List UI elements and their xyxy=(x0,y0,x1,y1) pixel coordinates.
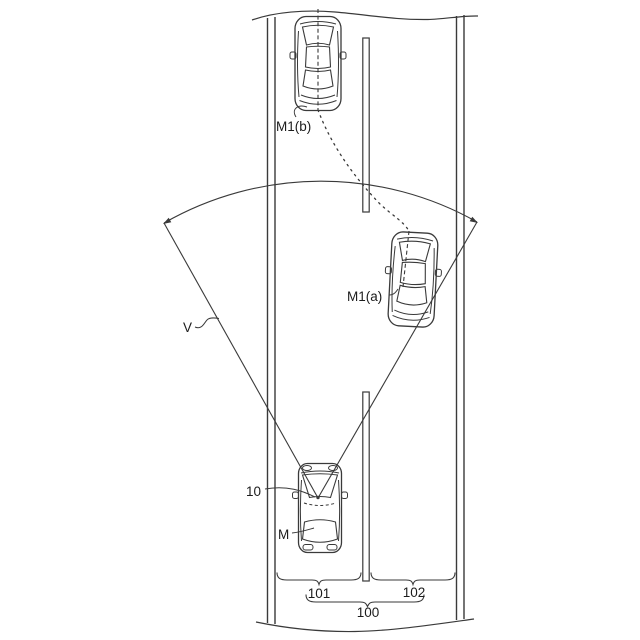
fov-arc xyxy=(164,181,477,223)
label-field-of-view: V xyxy=(183,320,192,335)
label-vehicle-m1a: M1(a) xyxy=(347,289,382,304)
vehicle-ego-headlight-left xyxy=(303,466,312,471)
vehicle-ego-taillight-right xyxy=(327,545,337,551)
predicted-trajectory xyxy=(318,9,409,287)
label-lane-right: 102 xyxy=(403,585,426,600)
sensor-origin-point xyxy=(316,496,319,499)
vehicle-ego-taillight-left xyxy=(303,545,313,551)
fov-edge-left xyxy=(164,223,318,498)
leader-m1b xyxy=(294,106,307,117)
dimension-braces xyxy=(277,573,455,607)
vehicle-m1a xyxy=(383,231,444,328)
leader-lines xyxy=(195,106,398,533)
trajectory-dotted-curve xyxy=(318,110,409,231)
brace-lane-left xyxy=(277,573,361,585)
label-ego-vehicle: M xyxy=(278,527,289,542)
label-vehicle-m1b: M1(b) xyxy=(276,119,311,134)
figure-canvas: M1(b) M1(a) V 10 M 101 102 100 xyxy=(0,0,640,640)
sensor-field-of-view xyxy=(163,181,478,499)
label-sensor: 10 xyxy=(246,484,261,499)
fov-arrowhead-right xyxy=(470,217,478,223)
vehicle-ego xyxy=(293,464,348,553)
lane-divider-dash-bottom xyxy=(363,392,369,581)
leader-m1a xyxy=(389,289,398,295)
road-break-line-bottom xyxy=(256,619,474,632)
vehicle-ego-mirror-left xyxy=(293,492,299,499)
label-road: 100 xyxy=(357,605,380,620)
vehicle-ego-body xyxy=(299,464,342,553)
road-diagram: M1(b) M1(a) V 10 M 101 102 100 xyxy=(0,0,640,640)
label-lane-left: 101 xyxy=(308,586,331,601)
fov-arrowhead-left xyxy=(163,218,171,224)
road-break-line-top xyxy=(252,11,478,20)
fov-edge-right xyxy=(318,222,477,498)
vehicle-ego-dashboard-line xyxy=(304,503,336,506)
vehicle-ego-mirror-right xyxy=(342,492,348,499)
leader-v xyxy=(195,318,219,328)
brace-lane-right xyxy=(371,573,455,585)
